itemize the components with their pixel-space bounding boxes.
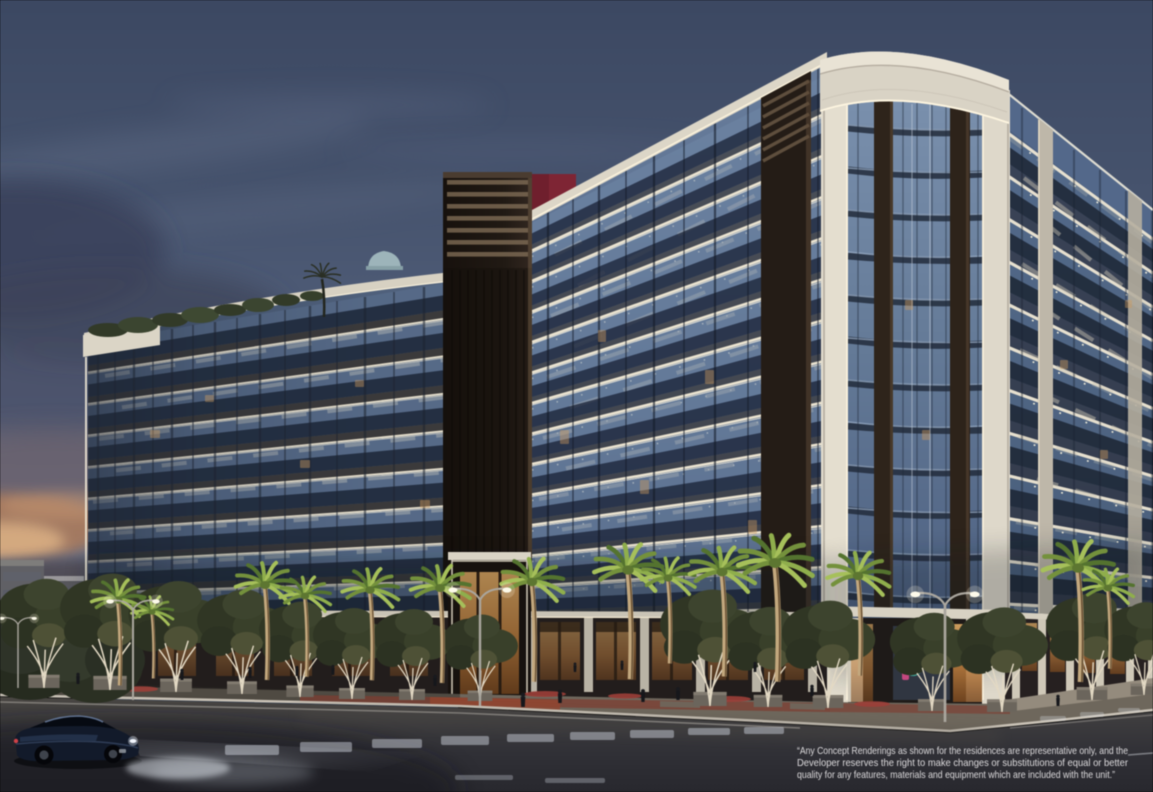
svg-text:quality for any features, mate: quality for any features, materials and … xyxy=(797,770,1116,781)
svg-text:“Any Concept Renderings as sho: “Any Concept Renderings as shown for the… xyxy=(797,746,1128,757)
svg-text:Developer reserves the right t: Developer reserves the right to make cha… xyxy=(797,758,1129,769)
